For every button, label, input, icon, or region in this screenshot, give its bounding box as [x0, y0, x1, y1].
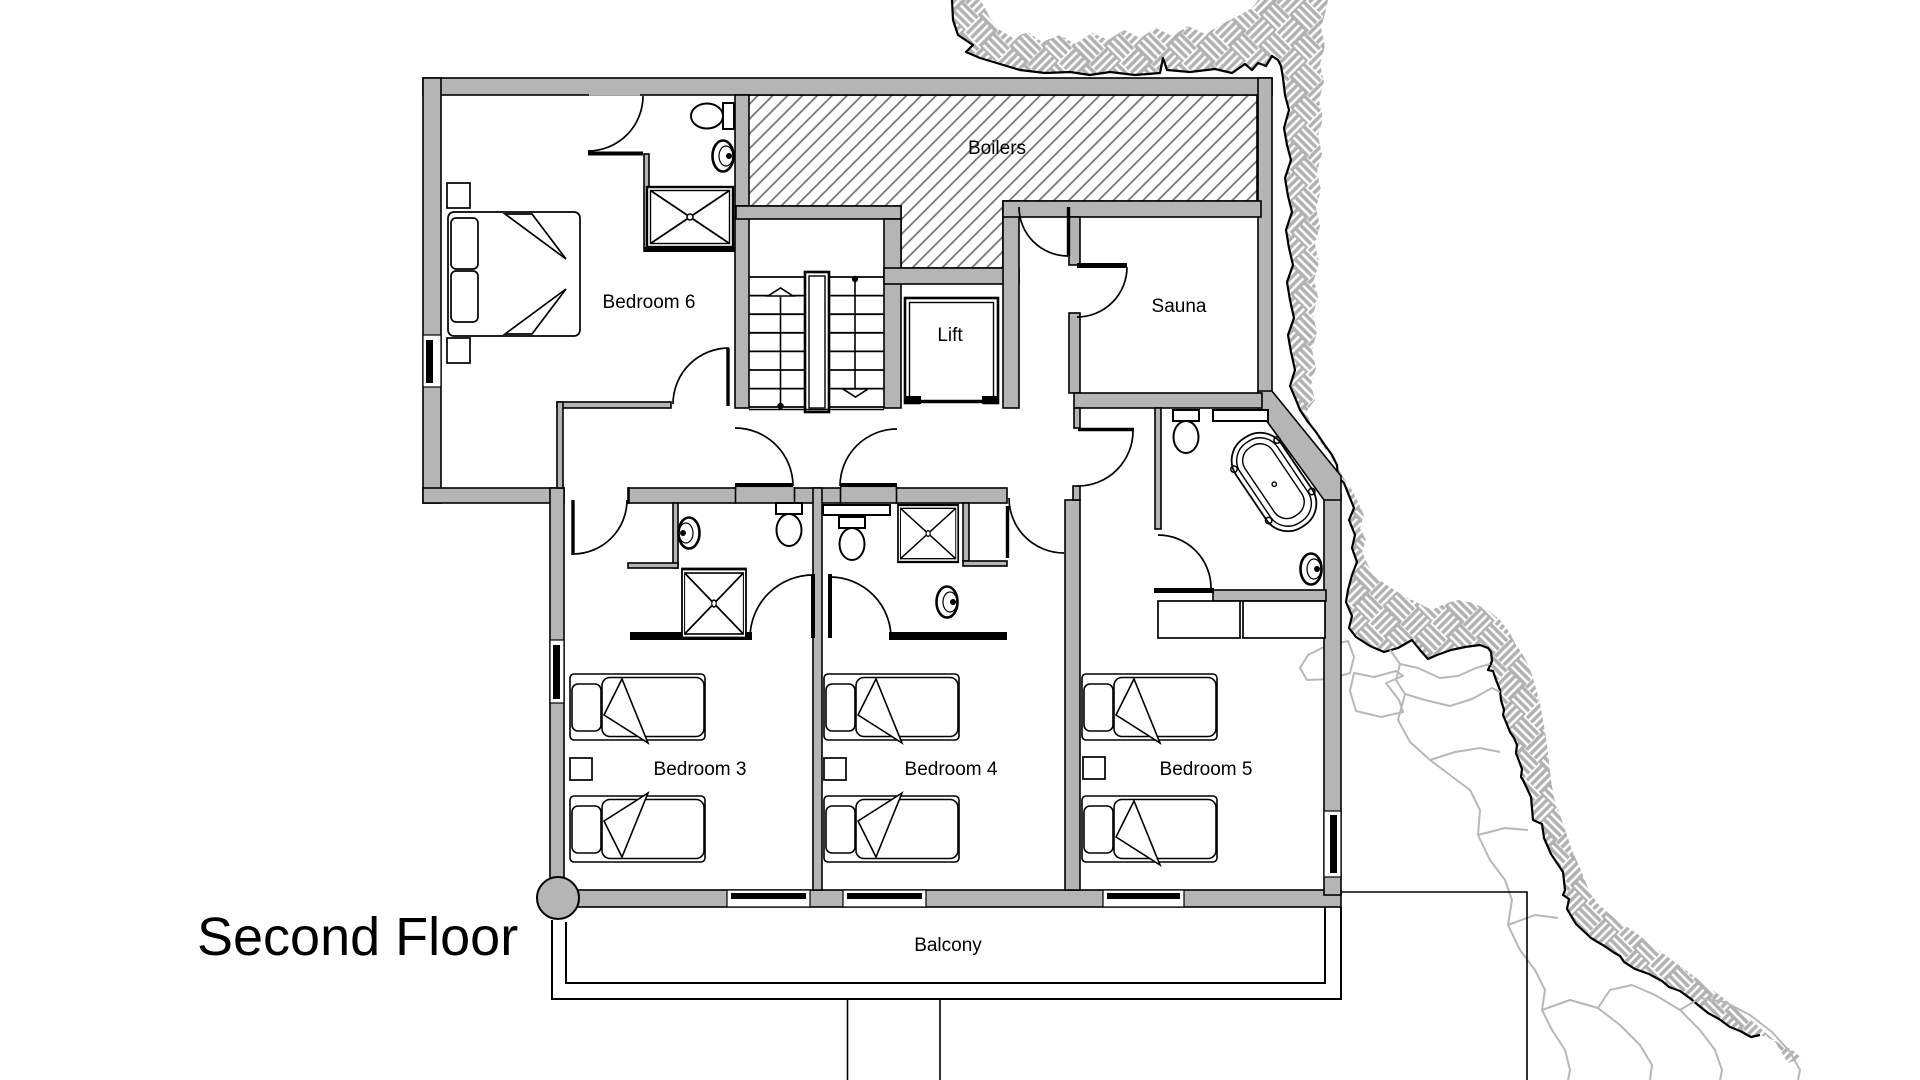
svg-text:Sauna: Sauna — [1152, 296, 1207, 317]
svg-text:Bedroom 3: Bedroom 3 — [654, 759, 747, 780]
svg-text:Bedroom 5: Bedroom 5 — [1160, 759, 1253, 780]
svg-text:Lift: Lift — [937, 325, 963, 346]
svg-text:Boilers: Boilers — [968, 138, 1026, 159]
svg-text:Bedroom 6: Bedroom 6 — [603, 292, 696, 313]
svg-text:Balcony: Balcony — [914, 935, 982, 956]
svg-text:Bedroom 4: Bedroom 4 — [905, 759, 998, 780]
svg-text:Second Floor: Second Floor — [197, 907, 518, 967]
